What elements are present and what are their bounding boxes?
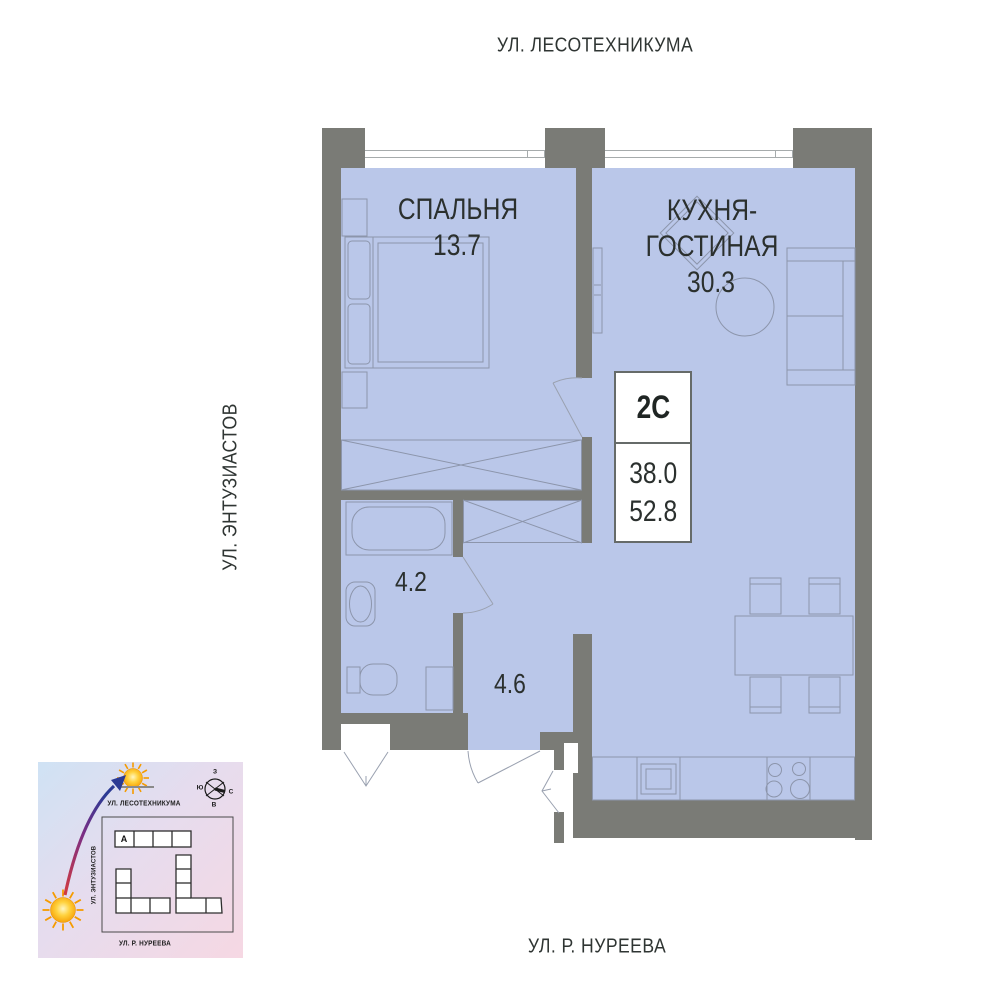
wall-bottom	[573, 800, 872, 838]
street-label-left: УЛ. ЭНТУЗИАСТОВ	[220, 403, 243, 571]
compass-west: З	[213, 769, 217, 776]
street-label-top: УЛ. ЛЕСОТЕХНИКУМА	[497, 35, 693, 58]
window-kitchen	[605, 128, 793, 168]
side-niche	[564, 743, 578, 773]
hallway-area: 4.6	[494, 668, 526, 700]
wall	[545, 128, 605, 168]
compass-east: В	[212, 802, 217, 809]
total-area: 52.8	[629, 495, 677, 529]
wall-stub	[554, 750, 564, 770]
hallway-entrance-door	[468, 751, 540, 783]
minimap-street-left: УЛ. ЭНТУЗИАСТОВ	[91, 846, 98, 905]
compass-north: С	[229, 789, 234, 796]
wall-bathroom	[453, 613, 463, 713]
building-a-label: А	[121, 834, 128, 844]
wall-bathroom	[453, 500, 463, 557]
unit-type: 2С	[616, 373, 690, 444]
floor-bedroom-doorway	[576, 378, 592, 437]
kitchen-label-line1: КУХНЯ-	[667, 194, 757, 228]
minimap-street-bottom: УЛ. Р. НУРЕЕВА	[119, 941, 171, 948]
site-minimap: УЛ. ЛЕСОТЕХНИКУМА УЛ. ЭНТУЗИАСТОВ УЛ. Р.…	[38, 762, 243, 958]
unit-info-box: 2С 38.0 52.8	[614, 371, 692, 543]
compass-south: Ю	[197, 785, 204, 792]
wall-bedroom-kitchen	[576, 168, 592, 378]
wall-stub	[554, 812, 564, 843]
floorplan-page: УЛ. ЛЕСОТЕХНИКУМА УЛ. ЭНТУЗИАСТОВ УЛ. Р.…	[0, 0, 1000, 1000]
floor-bath-doorway	[453, 557, 463, 613]
bedroom-area: 13.7	[433, 229, 481, 263]
living-area: 38.0	[629, 457, 677, 491]
kitchen-label-line2: ГОСТИНАЯ	[646, 230, 779, 264]
vestibule-door	[542, 771, 559, 813]
compass-icon	[205, 779, 225, 799]
minimap-graphics	[38, 762, 243, 958]
floor-bathroom	[341, 500, 453, 713]
buildings	[115, 831, 222, 913]
entry-niche	[341, 724, 390, 750]
street-label-bottom: УЛ. Р. НУРЕЕВА	[528, 936, 666, 959]
bathroom-area: 4.2	[395, 566, 427, 598]
minimap-street-top: УЛ. ЛЕСОТЕХНИКУМА	[107, 801, 180, 808]
wall-right	[855, 128, 872, 840]
bedroom-label: СПАЛЬНЯ	[398, 193, 518, 227]
wall-bedroom-bottom	[341, 490, 592, 500]
window-bedroom	[365, 128, 545, 168]
sun-icon	[43, 890, 84, 931]
kitchen-area: 30.3	[687, 266, 735, 300]
service-niche-door	[344, 752, 388, 786]
wall-left	[322, 128, 341, 750]
